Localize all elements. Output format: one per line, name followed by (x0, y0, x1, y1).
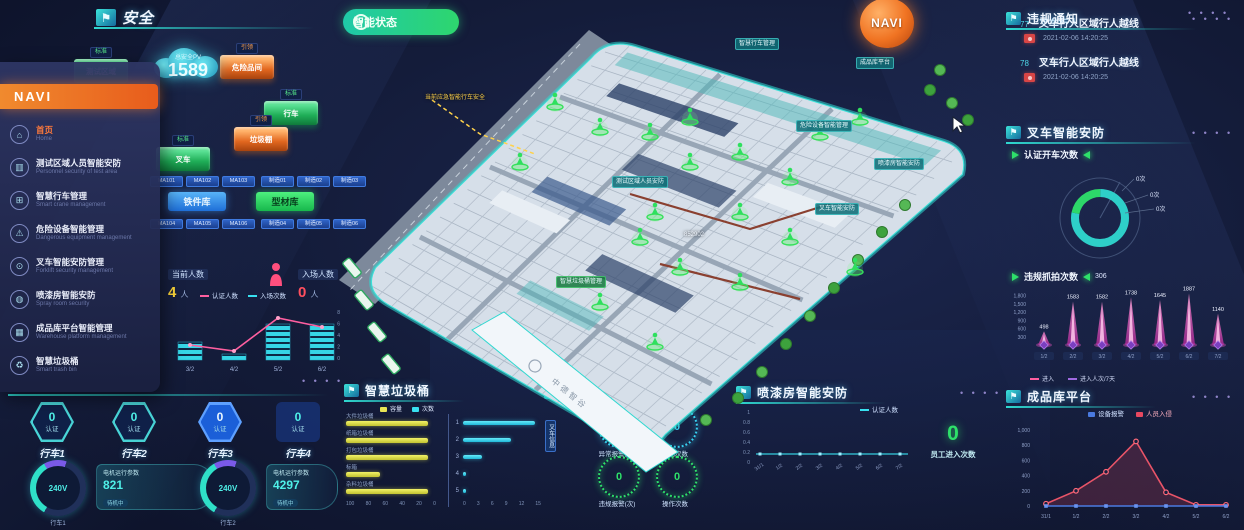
trash-icon: ♻ (10, 356, 29, 375)
sidebar-item-sublabel: Smart trash bin (36, 367, 79, 374)
trash-count-row: 3 (453, 448, 539, 465)
svg-text:498: 498 (1039, 324, 1048, 330)
sidebar-item-text: 智慧垃圾桶Smart trash bin (36, 357, 79, 373)
sidebar-item-sublabel: Warehouse platform management (36, 334, 127, 341)
sidebar-item-sublabel: Spray room security (36, 301, 96, 308)
sidebar-item-text: 首页Home (36, 126, 53, 142)
zone-chip[interactable]: 制造06 (333, 219, 366, 230)
trash-capacity-row: 打包垃圾桶 (346, 448, 438, 465)
page-title: 安全 (122, 7, 154, 28)
map-label: 叉车智能安防 (815, 203, 859, 215)
sidebar-item-1[interactable]: ⌂首页Home (10, 118, 156, 151)
svg-text:5/2: 5/2 (1193, 514, 1200, 520)
crane-badge-caption: 认证 (46, 423, 59, 433)
svg-text:5/2: 5/2 (855, 463, 864, 472)
current-people-label: 当前人数 (168, 269, 208, 280)
crane-badge-value: 0 (49, 411, 56, 423)
auth-drive-donut: 0次0次0次 (1040, 163, 1190, 267)
dashboard: ⚑ 安全 • • • • 智能状态 NAVI 总安全PV 1589 标准测试区域… (0, 0, 1244, 530)
crane-gauge-2: 240V (200, 460, 256, 516)
spray-big-label: 员工进入次数 (910, 449, 996, 460)
violation-number: 78 (1020, 59, 1029, 68)
sidebar-item-sublabel: Home (36, 136, 53, 143)
svg-text:1583: 1583 (1067, 295, 1079, 301)
forklift-equipment-panel: ⚑ 叉车设备 0异常报警(次)0启动次数0违规报警(次)0操作次数 (540, 378, 730, 528)
crane-panel: 0认证行车10认证行车20认证行车30认证行车4 240V 行车1 电机运行参数… (4, 394, 340, 528)
svg-text:6/2: 6/2 (875, 463, 884, 472)
zone-button-green[interactable]: 型材库 (256, 192, 314, 211)
warehouse-icon: ▦ (10, 323, 29, 342)
svg-text:4/2: 4/2 (835, 463, 844, 472)
crane-badge-name: 行车1 (16, 445, 88, 460)
sidebar-item-2[interactable]: ▥测试区域人员智能安防Personnel security of test ar… (10, 151, 156, 184)
camera-icon (1024, 34, 1035, 43)
sidebar-item-4[interactable]: ⚠危险设备智能管理Dangerous equipment management (10, 217, 156, 250)
trash-capacity-row: 纸箱垃圾桶 (346, 431, 438, 448)
crane-gauge-1-name: 行车1 (30, 518, 86, 527)
crane-badge-value: 0 (295, 411, 302, 423)
entry-people-stat: 入场人数 0 人 (298, 264, 338, 301)
svg-text:200: 200 (1022, 489, 1031, 495)
sidebar-item-label: 叉车智能安防管理 (36, 258, 113, 268)
sidebar-item-text: 测试区域人员智能安防Personnel security of test are… (36, 159, 121, 175)
svg-text:3/2: 3/2 (1099, 354, 1106, 360)
people-combo-chart: 3/24/25/26/286420 (164, 302, 342, 382)
crane-badge-caption: 认证 (128, 423, 141, 433)
spray-big-value: 0 (910, 422, 996, 446)
zone-box-label: 叉车 (156, 147, 210, 171)
violation-time: 2021-02-06 14:20:25 (1043, 74, 1108, 81)
play-icon-left (1083, 273, 1090, 281)
sidebar-item-sublabel: Personnel security of test area (36, 169, 121, 176)
people-section-dots[interactable]: • • • • (302, 376, 343, 386)
svg-text:8: 8 (337, 310, 340, 316)
warehouse-panel: ⚑ 成品库平台 • • • • 设备报警 人员入侵 1,000800600400… (1002, 382, 1242, 528)
map-label: 852902 (684, 232, 704, 238)
zone-tag: 引领 (250, 115, 272, 126)
violation-item[interactable]: 78叉车行人区域行人越线2021-02-06 14:20:25 (1020, 54, 1242, 82)
zone-chip[interactable]: MA106 (222, 219, 255, 230)
navi-sphere-label: NAVI (871, 16, 903, 30)
warehouse-line-chart: 1,000800600400200031/11/22/23/24/25/26/2 (1006, 418, 1238, 526)
forklift-security-title: 叉车智能安防 (1027, 124, 1105, 141)
sidebar-item-text: 喷漆房智能安防Spray room security (36, 291, 96, 307)
trash-panel-title: 智慧垃圾桶 (365, 382, 430, 399)
svg-text:1582: 1582 (1096, 295, 1108, 301)
trash-legend: 容量次数 (380, 404, 434, 413)
zone-chip[interactable]: 制造02 (297, 176, 330, 187)
svg-text:1738: 1738 (1125, 290, 1137, 296)
zone-tag: 引领 (236, 43, 258, 54)
spray-room-panel: ⚑ 喷漆房智能安防 • • • • 认证人数 10.80.60.40.20 31… (732, 378, 1002, 528)
camera-icon (1024, 73, 1035, 82)
svg-text:31/1: 31/1 (1041, 514, 1051, 520)
capture-metric: 违规抓拍次数 306 (1012, 270, 1242, 283)
svg-text:1,200: 1,200 (1013, 310, 1026, 316)
svg-text:900: 900 (1018, 318, 1027, 324)
trash-panel: ⚑ 智慧垃圾桶 容量次数 大件垃圾桶纸箱垃圾桶打包垃圾桶标箱杂料垃圾桶10080… (340, 378, 540, 528)
svg-text:1,800: 1,800 (1013, 294, 1026, 300)
svg-text:3/2: 3/2 (815, 463, 824, 472)
page-menu-dots[interactable]: • • • • (1188, 8, 1229, 18)
trash-capacity-axis: 100806040200 (346, 501, 436, 507)
home-icon: ⌂ (10, 125, 29, 144)
navi-sphere-button[interactable]: NAVI (860, 0, 914, 48)
sidebar-item-sublabel: Smart crane management (36, 202, 105, 209)
svg-text:7/2: 7/2 (1215, 354, 1222, 360)
map-label: 测试区域人员安防 (612, 176, 668, 188)
svg-text:2: 2 (337, 345, 340, 351)
sidebar-item-8[interactable]: ♻智慧垃圾桶Smart trash bin (10, 349, 156, 382)
forklift-ring-4: 0 (656, 456, 698, 498)
flag-icon: ⚑ (1006, 126, 1021, 139)
crane-gauge-2-name: 行车2 (200, 518, 256, 527)
sidebar-item-text: 成品库平台智能管理Warehouse platform management (36, 324, 127, 340)
zone-chip[interactable]: 制造01 (261, 176, 294, 187)
warehouse-legend: 设备报警 人员入侵 (1088, 408, 1172, 418)
crane-badge-行车2: 0认证行车2 (98, 402, 170, 460)
zone-chip[interactable]: MA103 (222, 176, 255, 187)
svg-text:2/2: 2/2 (1070, 354, 1077, 360)
sidebar-item-6[interactable]: ◍喷漆房智能安防Spray room security (10, 283, 156, 316)
crane-badge-name: 行车2 (98, 445, 170, 460)
zone-chip[interactable]: 制造05 (297, 219, 330, 230)
sidebar-item-label: 首页 (36, 126, 53, 136)
sidebar-item-sublabel: Forklift security management (36, 268, 113, 275)
zone-hexbox-叉车[interactable]: 标准叉车 (156, 128, 210, 171)
forklift-ring-3: 0 (598, 456, 640, 498)
svg-text:300: 300 (1018, 335, 1027, 341)
navi-menu-title: NAVI (14, 89, 52, 104)
test-area-people-section: 当前人数 4 人 入场人数 0 人 认证人数 入场次数 3/24/25/26/2… (164, 260, 346, 386)
zone-chip[interactable]: 制造04 (261, 219, 294, 230)
flag-icon: ⚑ (1006, 12, 1021, 25)
warning-icon: ⚠ (10, 224, 29, 243)
sidebar-item-label: 喷漆房智能安防 (36, 291, 96, 301)
crane-badge-value: 0 (217, 411, 224, 423)
forklift-ring-label: 操作次数 (637, 498, 713, 508)
svg-text:2/2: 2/2 (1103, 514, 1110, 520)
header-underline (94, 27, 314, 29)
crane-badge-name: 行车4 (262, 445, 334, 460)
trash-count-row: 4 (453, 465, 539, 482)
svg-text:0次: 0次 (1156, 205, 1165, 213)
crane-badge-value: 0 (131, 411, 138, 423)
flag-icon: ⚑ (736, 386, 751, 399)
forklift-icon: ⊙ (10, 257, 29, 276)
play-icon (1012, 151, 1019, 159)
warehouse-panel-title: 成品库平台 (1027, 388, 1092, 405)
person-icon (268, 262, 284, 288)
zone-tag: 标准 (172, 135, 194, 146)
svg-text:600: 600 (1022, 458, 1031, 464)
map-label: 智慧行车管理 (735, 38, 779, 50)
zone-box-label: 垃圾棚 (234, 127, 288, 151)
people-chart-legend: 认证人数 入场次数 (200, 290, 286, 300)
spray-panel-title: 喷漆房智能安防 (757, 384, 848, 401)
map-label: 当前应急智能行车安全 (425, 92, 485, 101)
svg-text:4/2: 4/2 (1163, 514, 1170, 520)
mouse-cursor (952, 116, 966, 134)
svg-text:1645: 1645 (1154, 293, 1166, 299)
svg-text:4: 4 (337, 333, 340, 339)
crane-badge-行车4: 0认证行车4 (262, 402, 334, 460)
sidebar-item-label: 智慧垃圾桶 (36, 357, 79, 367)
crane-badge-行车3: 0认证行车3 (184, 402, 256, 460)
page-header: ⚑ 安全 (96, 7, 154, 28)
crane-card-2: 电机运行参数 4297 待机中 (266, 464, 338, 510)
navi-menu: NAVI ⌂首页Home▥测试区域人员智能安防Personnel securit… (0, 62, 160, 392)
sidebar-item-text: 智慧行车管理Smart crane management (36, 192, 105, 208)
trash-legend-item: 次数 (412, 404, 434, 413)
sidebar-item-sublabel: Dangerous equipment management (36, 235, 132, 242)
zone-chip[interactable]: 制造03 (333, 176, 366, 187)
zone-button-blue[interactable]: 铁件库 (168, 192, 226, 211)
spray-panel-dots[interactable]: • • • • (960, 388, 1001, 398)
svg-text:4/2: 4/2 (230, 367, 239, 373)
play-icon-left (1083, 151, 1090, 159)
capture-chart-section: 违规抓拍次数 306 1,8001,5001,2009006003004981/… (1002, 266, 1242, 382)
crane-badge-caption: 认证 (214, 423, 227, 433)
trash-count-row: 1 (453, 414, 539, 431)
status-button[interactable]: 智能状态 (343, 9, 459, 35)
svg-text:3/2: 3/2 (186, 367, 195, 373)
zone-chip[interactable]: MA102 (186, 176, 219, 187)
sidebar-item-text: 危险设备智能管理Dangerous equipment management (36, 225, 132, 241)
sidebar-item-label: 智慧行车管理 (36, 192, 105, 202)
entry-people-label: 入场人数 (298, 269, 338, 280)
trash-count-chart: 1234503691215 (448, 414, 539, 507)
trash-capacity-row: 杂料垃圾桶 (346, 482, 438, 499)
forklift-ring-2: 0 (656, 406, 698, 448)
svg-text:5/2: 5/2 (1157, 354, 1164, 360)
svg-text:2/2: 2/2 (795, 463, 804, 472)
svg-text:1,000: 1,000 (1017, 428, 1030, 434)
capture-spike-chart: 1,8001,5001,2009006003004981/215832/2158… (1006, 283, 1238, 367)
map-label: 危险设备智能管理 (796, 120, 852, 132)
violation-notice-panel: ⚑ 违规通知 • • • • 77叉车行人区域行人越线2021-02-06 14… (1002, 4, 1242, 116)
svg-text:6/2: 6/2 (318, 367, 327, 373)
zone-hexbox-垃圾棚[interactable]: 引领垃圾棚 (234, 108, 288, 151)
current-people-value: 4 (168, 284, 176, 301)
map-label: 智慧垃圾桶管理 (556, 276, 606, 288)
entry-people-value: 0 (298, 284, 306, 301)
svg-text:800: 800 (1022, 443, 1031, 449)
trash-count-row: 5 (453, 482, 539, 499)
sidebar-item-label: 成品库平台智能管理 (36, 324, 127, 334)
zone-tag: 标准 (280, 89, 302, 100)
svg-text:7/2: 7/2 (895, 463, 904, 472)
warehouse-panel-dots[interactable]: • • • • (1192, 392, 1233, 402)
forklift-ring-1: 0 (598, 406, 640, 448)
svg-text:1/2: 1/2 (1041, 354, 1048, 360)
crane-icon: ⊞ (10, 191, 29, 210)
sidebar-item-5[interactable]: ⊙叉车智能安防管理Forklift security management (10, 250, 156, 283)
svg-text:6/2: 6/2 (1186, 354, 1193, 360)
sidebar-item-text: 叉车智能安防管理Forklift security management (36, 258, 113, 274)
flag-icon: ⚑ (96, 9, 116, 26)
trash-capacity-row: 大件垃圾桶 (346, 414, 438, 431)
svg-text:4/2: 4/2 (1128, 354, 1135, 360)
capture-badge: 306 (1095, 273, 1107, 280)
svg-text:5/2: 5/2 (274, 367, 283, 373)
crane-card-1: 电机运行参数 821 待机中 (96, 464, 214, 510)
svg-text:0次: 0次 (1136, 175, 1145, 183)
flag-icon: ⚑ (344, 384, 359, 397)
svg-text:0次: 0次 (1150, 191, 1159, 199)
sidebar-item-label: 测试区域人员智能安防 (36, 159, 121, 169)
trash-count-row: 2 (453, 431, 539, 448)
status-icon (353, 14, 369, 30)
svg-text:1/2: 1/2 (1073, 514, 1080, 520)
svg-text:1887: 1887 (1183, 286, 1195, 292)
svg-text:0: 0 (1027, 504, 1030, 510)
crane-gauge-1: 240V (30, 460, 86, 516)
violation-text: 叉车行人区域行人越线 (1039, 54, 1139, 69)
auth-drive-metric: 认证开车次数 (1012, 148, 1242, 161)
forklift-security-dots[interactable]: • • • • (1192, 128, 1233, 138)
svg-text:400: 400 (1022, 474, 1031, 480)
svg-text:1,500: 1,500 (1013, 302, 1026, 308)
flag-icon: ⚑ (544, 386, 559, 399)
play-icon (1012, 273, 1019, 281)
people-icon: ▥ (10, 158, 29, 177)
forklift-panel-title: 叉车设备 (565, 384, 617, 401)
violation-panel-title: 违规通知 (1027, 10, 1079, 27)
svg-text:31/1: 31/1 (754, 462, 766, 473)
sidebar-item-3[interactable]: ⊞智慧行车管理Smart crane management (10, 184, 156, 217)
sidebar-item-label: 危险设备智能管理 (36, 225, 132, 235)
zone-chip[interactable]: MA105 (186, 219, 219, 230)
svg-text:6/2: 6/2 (1223, 514, 1230, 520)
crane-badge-行车1: 0认证行车1 (16, 402, 88, 460)
forklift-security-panel: ⚑ 叉车智能安防 • • • • 认证开车次数 0次0次0次 (1002, 118, 1242, 268)
crane-badge-name: 行车3 (184, 445, 256, 460)
spray-icon: ◍ (10, 290, 29, 309)
violation-time: 2021-02-06 14:20:25 (1043, 35, 1108, 42)
spray-line-chart: 31/11/22/23/24/25/26/27/2 (752, 410, 912, 480)
zone-tag: 标准 (90, 47, 112, 58)
navi-menu-header: NAVI (0, 84, 158, 109)
trash-capacity-chart: 大件垃圾桶纸箱垃圾桶打包垃圾桶标箱杂料垃圾桶100806040200 (346, 414, 438, 507)
svg-text:1140: 1140 (1212, 307, 1224, 313)
svg-text:1/2: 1/2 (775, 463, 784, 472)
spray-y-axis: 10.80.60.40.20 (736, 410, 750, 466)
flag-icon: ⚑ (1006, 390, 1021, 403)
spray-big-stat: 0 员工进入次数 (910, 422, 996, 460)
trash-count-axis: 03691215 (463, 501, 541, 507)
svg-text:0: 0 (337, 356, 340, 362)
crane-badge-caption: 认证 (292, 423, 305, 433)
trash-capacity-row: 标箱 (346, 465, 438, 482)
svg-text:6: 6 (337, 322, 340, 328)
svg-text:600: 600 (1018, 327, 1027, 333)
trash-legend-item: 容量 (380, 404, 402, 413)
sidebar-item-7[interactable]: ▦成品库平台智能管理Warehouse platform management (10, 316, 156, 349)
svg-text:3/2: 3/2 (1133, 514, 1140, 520)
